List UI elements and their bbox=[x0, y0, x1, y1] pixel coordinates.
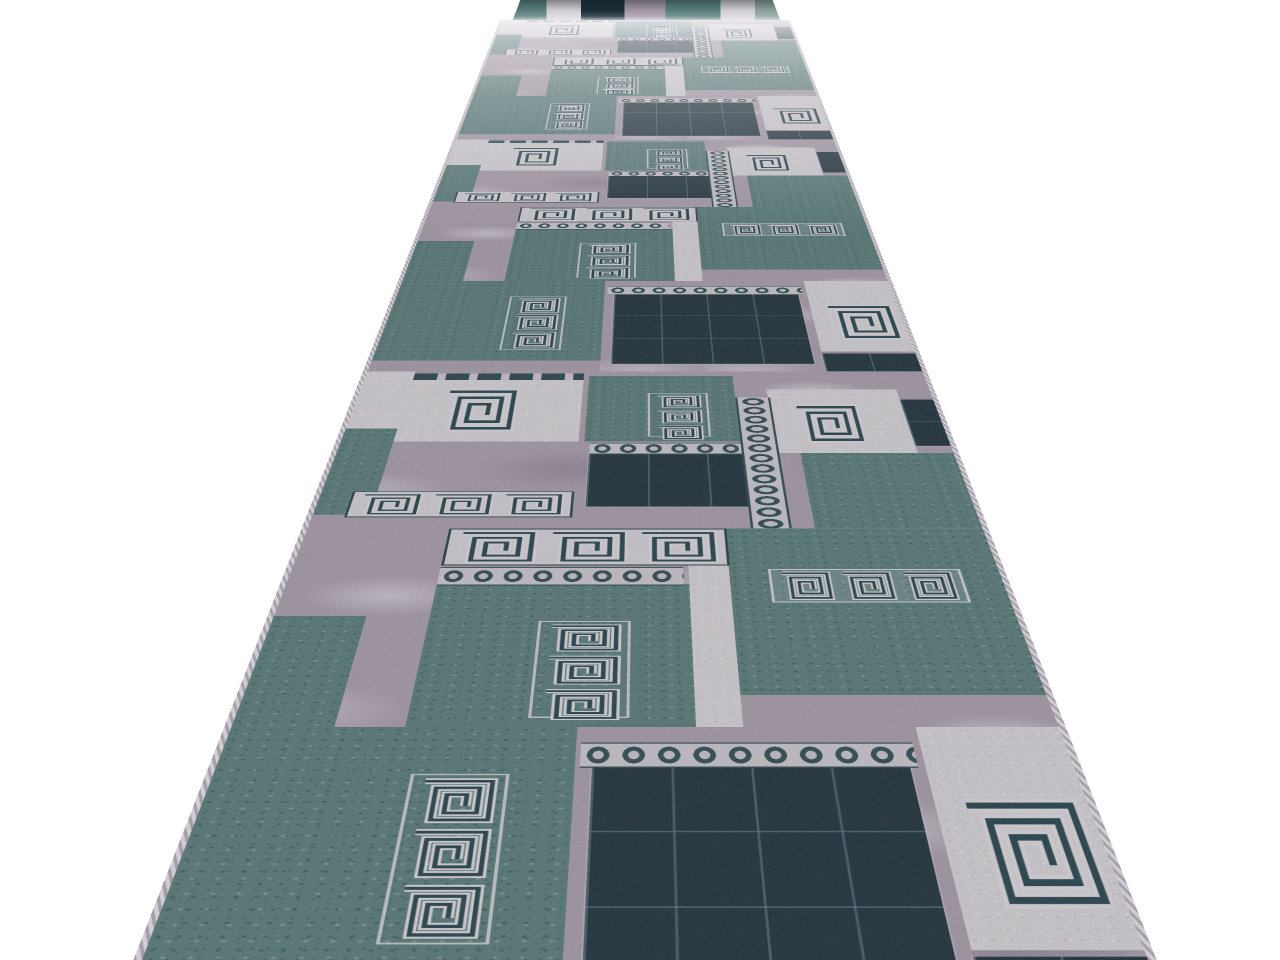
greek-key-spiral-motif bbox=[650, 34, 674, 37]
greek-key-spiral-column bbox=[528, 621, 631, 718]
greek-key-spiral-motif bbox=[765, 224, 801, 235]
rug-patch-teal bbox=[134, 727, 577, 960]
greek-key-spiral-motif bbox=[822, 305, 905, 340]
greek-key-spiral-motif bbox=[639, 208, 692, 221]
greek-key-spiral-motif bbox=[576, 50, 607, 55]
greek-key-spiral-motif bbox=[553, 104, 586, 111]
greek-key-band bbox=[518, 207, 699, 222]
product-photo-background bbox=[0, 0, 1280, 960]
greek-key-spiral-motif bbox=[506, 332, 557, 348]
circle-dot-border bbox=[551, 66, 662, 70]
greek-key-spiral-motif bbox=[791, 404, 868, 442]
rug-patch-teal bbox=[747, 176, 859, 207]
greek-key-spiral-motif bbox=[654, 410, 703, 423]
rug-patch-teal bbox=[800, 453, 982, 528]
square-row-border bbox=[413, 374, 584, 380]
circle-dot-border bbox=[437, 567, 684, 586]
greek-key-spiral-motif bbox=[651, 157, 683, 163]
greek-key-spiral-motif bbox=[499, 493, 566, 515]
greek-key-spiral-column bbox=[647, 149, 689, 168]
circle-dot-border bbox=[618, 38, 704, 41]
circle-dot-border bbox=[580, 742, 919, 767]
greek-key-spiral-motif bbox=[451, 531, 539, 563]
runner-rug bbox=[0, 0, 1280, 960]
greek-key-spiral-motif bbox=[654, 395, 702, 408]
greek-key-spiral-motif bbox=[601, 83, 635, 88]
greek-key-spiral-motif bbox=[508, 50, 540, 55]
greek-key-spiral-motif bbox=[505, 193, 548, 202]
circle-dot-border bbox=[607, 286, 803, 295]
greek-key-spiral-motif bbox=[838, 571, 898, 600]
rug-patch-lilac bbox=[740, 695, 1058, 727]
greek-key-band bbox=[722, 223, 846, 236]
greek-key-band bbox=[344, 491, 574, 517]
grid-square-motif bbox=[581, 765, 964, 960]
greek-key-band bbox=[552, 58, 683, 66]
greek-key-spiral-motif bbox=[769, 108, 824, 125]
greek-key-spiral-motif bbox=[543, 531, 628, 563]
edge-trim-far-end bbox=[500, 20, 790, 21]
greek-key-spiral-motif bbox=[509, 315, 559, 331]
rug-patch-lilac bbox=[368, 361, 601, 372]
greek-key-spiral-motif bbox=[584, 244, 631, 254]
greek-key-spiral-motif bbox=[513, 298, 561, 313]
rug-patch-teal bbox=[473, 75, 522, 95]
greek-key-spiral-motif bbox=[552, 193, 594, 202]
greek-key-spiral-motif bbox=[705, 67, 730, 73]
greek-key-spiral-column bbox=[499, 297, 567, 350]
rug-patch-teal bbox=[721, 40, 802, 57]
greek-key-spiral-motif bbox=[651, 164, 684, 170]
rug-pattern-module bbox=[110, 371, 1180, 960]
greek-key-spiral-motif bbox=[600, 89, 635, 95]
greek-key-spiral-motif bbox=[411, 778, 499, 824]
greek-key-band bbox=[504, 49, 611, 55]
rug-surface-plane bbox=[110, 20, 1180, 960]
greek-key-spiral-motif bbox=[459, 193, 503, 202]
square-row-border bbox=[526, 21, 613, 23]
greek-key-band bbox=[768, 569, 971, 603]
greek-key-spiral-motif bbox=[426, 493, 495, 515]
greek-key-spiral-motif bbox=[718, 29, 754, 38]
greek-key-spiral-motif bbox=[636, 531, 720, 563]
greek-key-spiral-column bbox=[596, 76, 639, 94]
square-row-border bbox=[488, 140, 604, 143]
circle-dot-border bbox=[618, 98, 755, 102]
rug-patch-teal bbox=[459, 96, 617, 134]
greek-key-spiral-motif bbox=[803, 224, 839, 235]
greek-key-band bbox=[453, 192, 599, 203]
greek-key-spiral-motif bbox=[655, 426, 705, 440]
greek-key-spiral-motif bbox=[537, 689, 621, 720]
grid-square-motif bbox=[822, 353, 922, 371]
rug-patch-teal bbox=[682, 57, 814, 90]
greek-key-spiral-motif bbox=[599, 58, 638, 65]
grid-square-motif bbox=[611, 294, 815, 364]
circle-dot-border bbox=[589, 443, 765, 455]
greek-key-spiral-motif bbox=[434, 389, 521, 432]
grid-square-motif bbox=[622, 102, 761, 136]
greek-key-spiral-column bbox=[545, 104, 590, 130]
greek-key-spiral-motif bbox=[544, 624, 622, 652]
greek-key-spiral-motif bbox=[733, 67, 758, 73]
rug-patch-teal bbox=[696, 207, 883, 270]
greek-key-spiral-motif bbox=[505, 147, 561, 166]
greek-key-spiral-motif bbox=[760, 67, 786, 73]
greek-key-band bbox=[441, 529, 730, 566]
greek-key-spiral-motif bbox=[557, 58, 596, 65]
greek-key-spiral-motif bbox=[549, 121, 584, 129]
greek-key-spiral-column bbox=[646, 26, 677, 37]
greek-key-spiral-motif bbox=[650, 30, 674, 33]
greek-key-spiral-motif bbox=[651, 150, 683, 156]
rug-pattern-module bbox=[453, 20, 836, 139]
rug-patch-lilac bbox=[702, 270, 888, 281]
rug-pattern-module bbox=[363, 139, 927, 371]
greek-key-spiral-motif bbox=[524, 208, 578, 221]
greek-key-spiral-motif bbox=[388, 884, 485, 939]
greek-key-spiral-motif bbox=[650, 26, 674, 29]
greek-key-spiral-motif bbox=[542, 50, 573, 55]
rug-patch-teal bbox=[372, 281, 605, 361]
greek-key-spiral-motif bbox=[583, 256, 631, 267]
greek-key-spiral-motif bbox=[899, 571, 961, 600]
greek-key-spiral-column bbox=[576, 243, 636, 278]
rug-patch-lilac bbox=[457, 134, 615, 139]
greek-key-spiral-motif bbox=[778, 571, 836, 600]
greek-key-spiral-motif bbox=[541, 24, 582, 35]
greek-key-spiral-motif bbox=[601, 77, 635, 82]
greek-key-spiral-motif bbox=[551, 112, 585, 120]
grid-square-motif bbox=[766, 131, 833, 139]
circle-dot-border bbox=[516, 222, 669, 229]
greek-key-spiral-motif bbox=[354, 493, 425, 515]
greek-key-spiral-motif bbox=[728, 224, 763, 235]
greek-key-spiral-motif bbox=[400, 829, 493, 879]
greek-key-spiral-motif bbox=[541, 655, 622, 684]
greek-key-spiral-motif bbox=[641, 58, 679, 65]
circle-dot-border bbox=[608, 171, 723, 176]
greek-key-spiral-motif bbox=[582, 268, 631, 279]
greek-key-spiral-motif bbox=[743, 154, 792, 171]
grid-square-motif bbox=[973, 957, 1171, 960]
rug-patch-lilac bbox=[685, 90, 816, 96]
greek-key-spiral-column bbox=[648, 393, 711, 437]
greek-key-spiral-motif bbox=[581, 208, 634, 221]
greek-key-band bbox=[701, 66, 790, 73]
